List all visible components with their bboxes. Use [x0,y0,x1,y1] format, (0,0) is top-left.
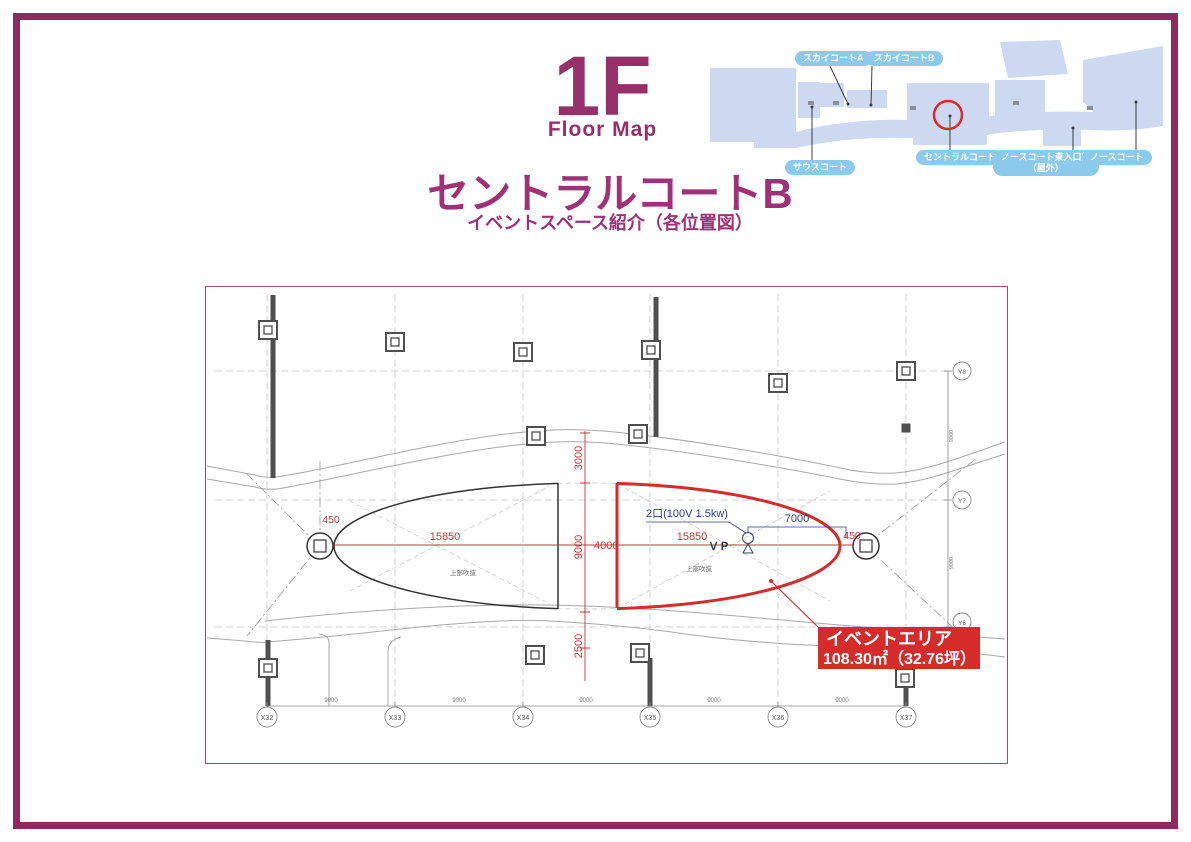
x-axis-x36: X36 [772,715,785,722]
power-outlet-label: 2口(100V 1.5kw) [646,508,728,520]
minimap-label-sky-court-b: スカイコートB [866,51,943,66]
x-axis-x34: X34 [517,715,530,722]
dim-15850-left: 15850 [430,531,461,543]
x-span-3: 9000 [707,698,721,704]
y-axis-y6: Y6 [958,620,966,627]
round-column-left [307,533,333,559]
floor-caption: Floor Map [520,118,685,142]
y-span-2: 9000 [949,557,955,569]
x-span-4: 9000 [835,698,849,704]
event-area-size: 108.30㎡（32.76坪） [823,649,976,668]
x-axis-x35: X35 [644,715,657,722]
dim-7000: 7000 [785,513,809,525]
void-label-left: 上部吹抜 [450,568,477,577]
event-area-name: イベントエリア [826,629,952,649]
minimap-label-north-court-east-line1: ノースコート東入口前 [1001,152,1091,163]
dim-15850-right: 15850 [677,531,708,543]
x-span-0: 9000 [324,698,338,704]
floor-map-page: 1F Floor Map セントラルコートB イベントスペース紹介（各位置図） [0,0,1191,842]
x-axis-x33: X33 [389,715,402,722]
dim-450-left: 450 [322,514,340,526]
dim-9000-mid: 9000 [573,535,585,559]
minimap-label-north-court: ノースコート [1082,150,1152,165]
x-span-1: 9000 [452,698,466,704]
y-axis-y8: Y8 [958,369,966,376]
x-axis-x32: X32 [261,715,274,722]
minimap-label-north-court-east-line2: （屋外） [1001,163,1091,174]
y-span-1: 9000 [949,430,955,442]
minimap-label-south-court: サウスコート [785,160,855,175]
dim-2500: 2500 [573,634,585,658]
x-span-2: 9000 [579,698,593,704]
y-axis-y7: Y7 [958,498,966,505]
floor-label: 1F [520,44,685,128]
void-label-right: 上部吹抜 [686,564,713,573]
x-axis-x37: X37 [900,715,913,722]
minimap-label-central-court: セントラルコート [916,150,1004,165]
dim-3000: 3000 [573,446,585,470]
dim-4000: 4000 [594,540,618,552]
page-subtitle: イベントスペース紹介（各位置図） [120,209,1100,235]
minimap-label-sky-court-a: スカイコートA [795,51,872,66]
vp-label: ＶＰ [708,540,730,553]
floorplan-drawing: 15850 15850 3000 9000 2500 4000 450 450 … [205,286,1008,764]
